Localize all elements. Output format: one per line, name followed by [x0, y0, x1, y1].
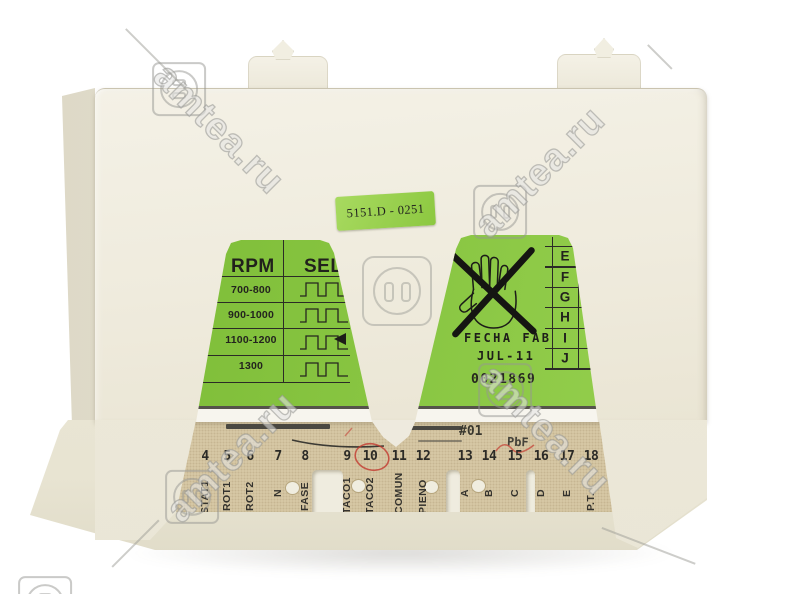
- watermark-line: [647, 44, 672, 69]
- watermark-text: amtea.ru: [145, 55, 293, 203]
- watermark-diamond-logo: [152, 62, 206, 116]
- watermark-diamond-logo: [165, 470, 219, 524]
- watermark-tile: [0, 557, 53, 594]
- watermark-tile: amtea.ru: [133, 43, 187, 97]
- watermark-text: amtea.ru: [466, 98, 614, 246]
- watermark-tile: amtea.ru: [454, 204, 508, 258]
- watermark-tile: amtea.ru: [146, 489, 200, 543]
- watermark-tiles: amtea.ruamtea.ruamtea.ruamtea.ru: [0, 0, 800, 594]
- watermark-tile: amtea.ru: [459, 344, 513, 398]
- watermark-line: [111, 520, 159, 568]
- watermark-text: amtea.ru: [471, 356, 619, 504]
- watermark-line: [602, 527, 696, 564]
- watermark-diamond-logo: [478, 363, 532, 417]
- watermark-line: [125, 28, 186, 89]
- product-photo-motor-control-module: #01 PbF 4STAT15ROT16ROT27N8FASE9TACO110T…: [0, 0, 800, 594]
- watermark-diamond-logo: [473, 185, 527, 239]
- watermark-text: amtea.ru: [158, 383, 306, 531]
- watermark-diamond-logo: [18, 576, 72, 594]
